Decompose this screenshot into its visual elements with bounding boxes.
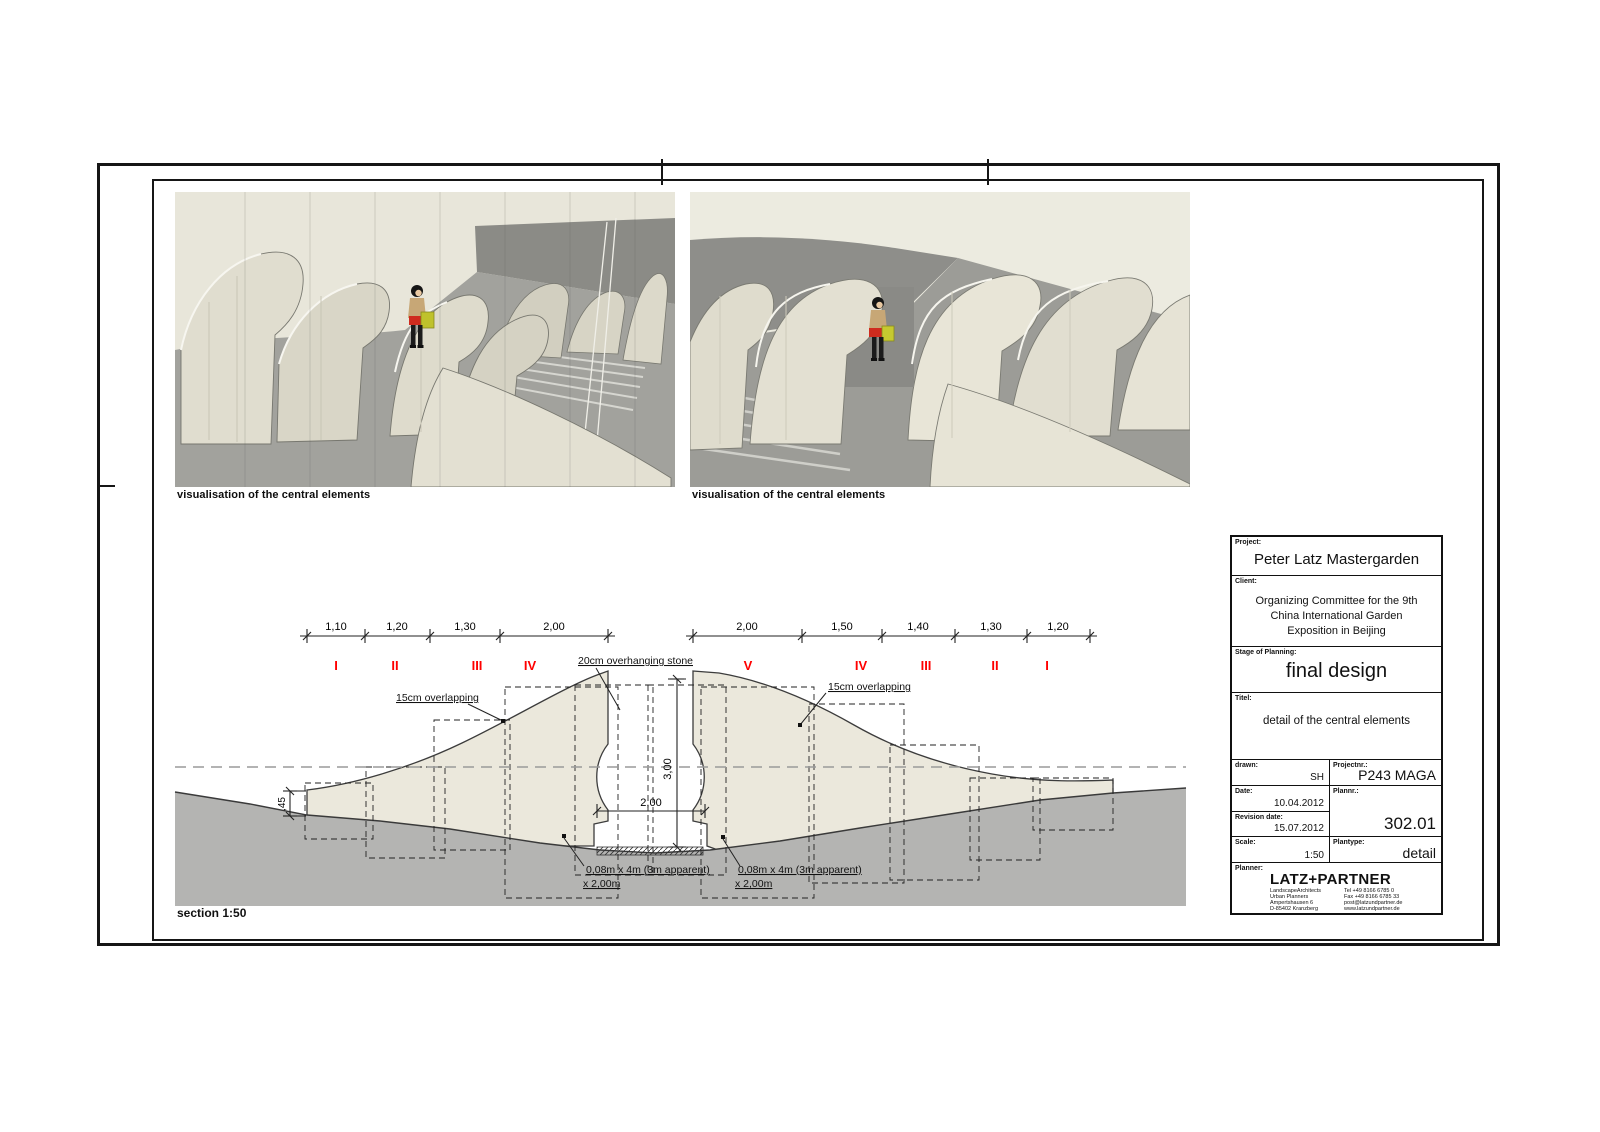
plan-sheet: visualisation of the central elements [0, 0, 1600, 1132]
dim-label: 3,00 [662, 758, 674, 779]
firm-contact-line: www.latzundpartner.de [1344, 906, 1402, 912]
numeral: II [991, 658, 998, 673]
scale-label: Scale: [1235, 839, 1256, 846]
plannr-value: 302.01 [1384, 814, 1436, 834]
meta-grid: drawn: SH Date: 10.04.2012 Revision date… [1232, 760, 1441, 863]
dim-label: 1,50 [831, 621, 852, 633]
dim-label: 1,10 [325, 621, 346, 633]
drawn-label: drawn: [1235, 762, 1258, 769]
title-block: Project: Peter Latz Mastergarden Client:… [1230, 535, 1443, 915]
plannr-label: Plannr.: [1333, 788, 1359, 795]
footing-hatch [597, 847, 703, 855]
numeral: III [921, 658, 932, 673]
project-cell: Project: Peter Latz Mastergarden [1232, 537, 1441, 576]
section-drawing: 1,10 1,20 1,30 2,00 2,00 1,50 1,40 1,30 … [170, 608, 1190, 913]
numeral: I [1045, 658, 1049, 673]
numeral: IV [855, 658, 868, 673]
dimension-chain-left: 1,10 1,20 1,30 2,00 [300, 621, 615, 643]
dim-label: 1,30 [454, 621, 475, 633]
dim-label: 2,00 [640, 797, 661, 809]
revision-value: 15.07.2012 [1274, 823, 1324, 834]
dim-label: 2,00 [736, 621, 757, 633]
firm-contact: Tel +49 8166 6785 0 Fax +49 8166 6785 33… [1344, 888, 1402, 912]
firm-name: LATZ+PARTNER [1270, 871, 1391, 888]
caption-left: visualisation of the central elements [177, 489, 370, 501]
annotation-overlap-right: 15cm overlapping [828, 681, 911, 693]
stage-label: Stage of Planning: [1235, 649, 1296, 656]
numeral: I [334, 658, 338, 673]
drawn-cell: drawn: SH [1232, 760, 1329, 786]
client-line: Exposition in Beijing [1232, 624, 1441, 639]
revision-label: Revision date: [1235, 814, 1283, 821]
annotation-overlap-left: 15cm overlapping [396, 692, 479, 704]
planner-cell: Planner: LATZ+PARTNER LandscapeArchitect… [1232, 863, 1441, 913]
dim-label: 1,20 [1047, 621, 1068, 633]
plantype-cell: Plantype: detail [1330, 837, 1441, 863]
plantype-value: detail [1403, 845, 1436, 861]
caption-right: visualisation of the central elements [692, 489, 885, 501]
dim-label: ,45 [277, 797, 288, 811]
projectnr-cell: Projectnr.: P243 MAGA [1330, 760, 1441, 786]
dim-label: 1,40 [907, 621, 928, 633]
client-line: Organizing Committee for the 9th [1232, 594, 1441, 609]
title-cell: Titel: detail of the central elements [1232, 693, 1441, 760]
projectnr-value: P243 MAGA [1358, 767, 1436, 783]
revision-cell: Revision date: 15.07.2012 [1232, 812, 1329, 837]
stage-cell: Stage of Planning: final design [1232, 647, 1441, 693]
annotation-panel-right-2: x 2,00m [735, 878, 773, 890]
plannr-cell: Plannr.: 302.01 [1330, 786, 1441, 837]
dim-label: 1,20 [386, 621, 407, 633]
drawn-value: SH [1310, 772, 1324, 783]
date-label: Date: [1235, 788, 1253, 795]
visualization-left [175, 192, 675, 487]
dim-label: 1,30 [980, 621, 1001, 633]
project-label: Project: [1235, 539, 1261, 546]
firm-address: LandscapeArchitects Urban Planners Amper… [1270, 888, 1321, 912]
client-line: China International Garden [1232, 609, 1441, 624]
date-cell: Date: 10.04.2012 [1232, 786, 1329, 812]
visualization-right [690, 192, 1190, 487]
dim-opening-height: 3,00 [662, 675, 686, 851]
planner-label: Planner: [1235, 865, 1263, 872]
annotation-panel-left-1: 0,08m x 4m (3m apparent) [586, 864, 710, 876]
scale-cell: Scale: 1:50 [1232, 837, 1329, 863]
section-scale-label: section 1:50 [177, 906, 246, 920]
numeral: V [744, 658, 753, 673]
plantype-label: Plantype: [1333, 839, 1365, 846]
firm-address-line: D-85402 Kranzberg [1270, 906, 1321, 912]
fold-mark-top-2 [987, 159, 989, 185]
project-value: Peter Latz Mastergarden [1232, 551, 1441, 568]
numeral: IV [524, 658, 537, 673]
fold-mark-left [97, 485, 115, 487]
annotation-panel-right-1: 0,08m x 4m (3m apparent) [738, 864, 862, 876]
scale-value: 1:50 [1305, 850, 1324, 861]
client-cell: Client: Organizing Committee for the 9th… [1232, 576, 1441, 647]
numeral: II [391, 658, 398, 673]
fold-mark-top-1 [661, 159, 663, 185]
numeral: III [472, 658, 483, 673]
dim-label: 2,00 [543, 621, 564, 633]
client-label: Client: [1235, 578, 1257, 585]
annotation-overhang: 20cm overhanging stone [578, 655, 693, 667]
annotation-panel-left-2: x 2,00m [583, 878, 621, 890]
title-value: detail of the central elements [1232, 715, 1441, 727]
title-label: Titel: [1235, 695, 1252, 702]
date-value: 10.04.2012 [1274, 798, 1324, 809]
dimension-chain-right: 2,00 1,50 1,40 1,30 1,20 [686, 621, 1097, 643]
stage-value: final design [1232, 660, 1441, 683]
dim-opening-width: 2,00 [593, 797, 709, 818]
